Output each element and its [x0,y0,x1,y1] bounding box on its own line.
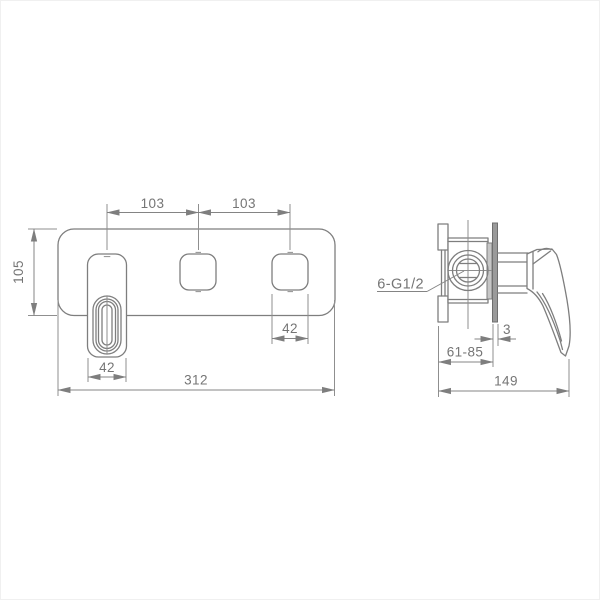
dim-overall-depth: 149 [439,359,570,397]
dim-text-42-right: 42 [282,321,298,336]
dim-text-103-left: 103 [141,196,165,211]
wall-plate-section [493,223,498,322]
mounting-bracket [438,224,448,322]
lever-handle [527,248,570,356]
dim-text-61-85: 61-85 [447,345,484,360]
dim-text-103-right: 103 [232,196,256,211]
bracket-lug-bottom [438,296,448,322]
dim-text-312: 312 [184,373,208,388]
drawing-canvas: 103 103 105 42 42 312 [0,0,600,600]
front-view: 103 103 105 42 42 312 [11,196,335,396]
thread-label: 6-G1/2 [377,277,424,293]
dim-text-3: 3 [503,322,511,337]
valve-body [448,220,492,329]
dim-handle-cutout: 42 [88,358,126,382]
side-view: 6-G1/2 3 61-85 149 [377,220,570,397]
valve-stem [498,253,529,293]
dim-install-depth: 61-85 [439,326,494,397]
dim-plate-height: 105 [11,229,57,316]
dim-text-105: 105 [11,260,26,284]
dim-text-42-left: 42 [99,360,115,375]
dim-text-149: 149 [494,374,518,389]
technical-drawing: 103 103 105 42 42 312 [0,0,600,600]
bracket-lug-top [438,224,448,250]
